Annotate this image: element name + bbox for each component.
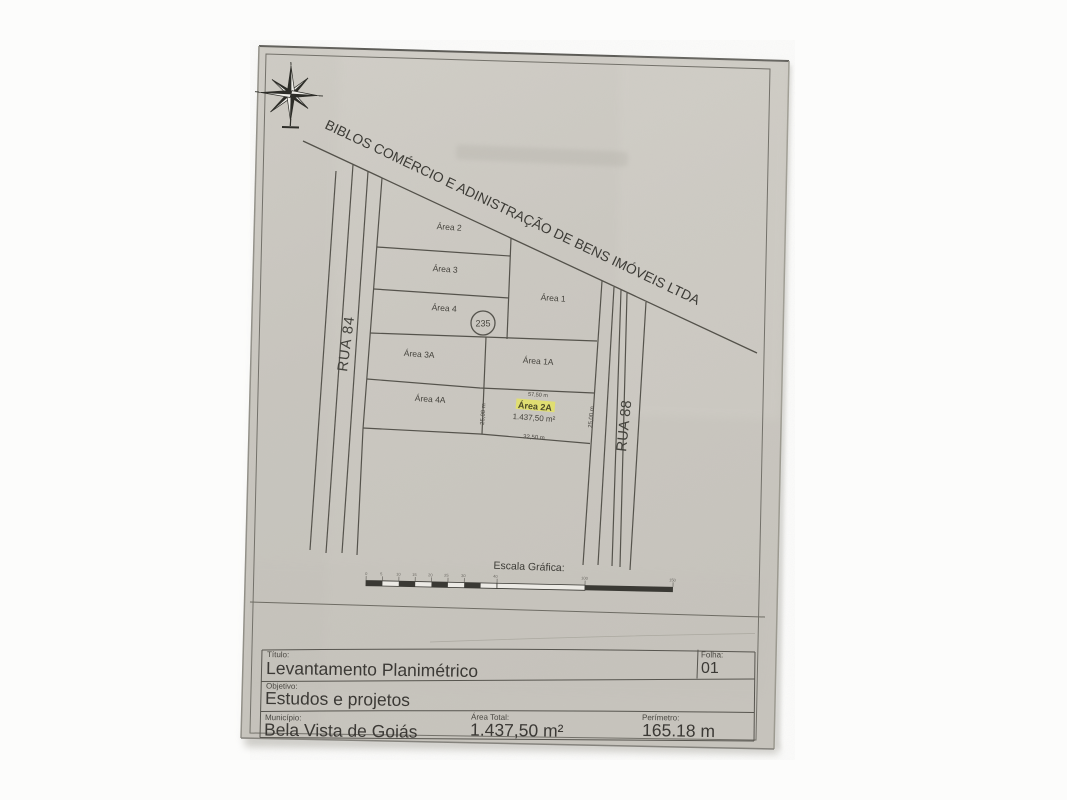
svg-text:Área 3: Área 3 bbox=[432, 263, 458, 275]
svg-text:Escala Gráfica:: Escala Gráfica: bbox=[493, 560, 565, 574]
svg-text:165.18 m: 165.18 m bbox=[642, 720, 715, 741]
svg-text:Bela Vista de Goiás: Bela Vista de Goiás bbox=[264, 720, 418, 742]
svg-text:Área 2: Área 2 bbox=[436, 221, 462, 233]
svg-text:1.437,50 m²: 1.437,50 m² bbox=[470, 720, 564, 741]
svg-text:Folha:: Folha: bbox=[701, 651, 723, 660]
svg-text:Área 1: Área 1 bbox=[540, 292, 566, 304]
svg-text:150: 150 bbox=[669, 577, 677, 582]
svg-text:Área 4: Área 4 bbox=[431, 302, 457, 314]
svg-text:Levantamento Planimétrico: Levantamento Planimétrico bbox=[266, 658, 478, 681]
svg-text:Estudos e projetos: Estudos e projetos bbox=[265, 688, 410, 710]
svg-text:100: 100 bbox=[581, 576, 589, 581]
svg-text:235: 235 bbox=[475, 319, 490, 329]
svg-text:01: 01 bbox=[701, 660, 719, 677]
